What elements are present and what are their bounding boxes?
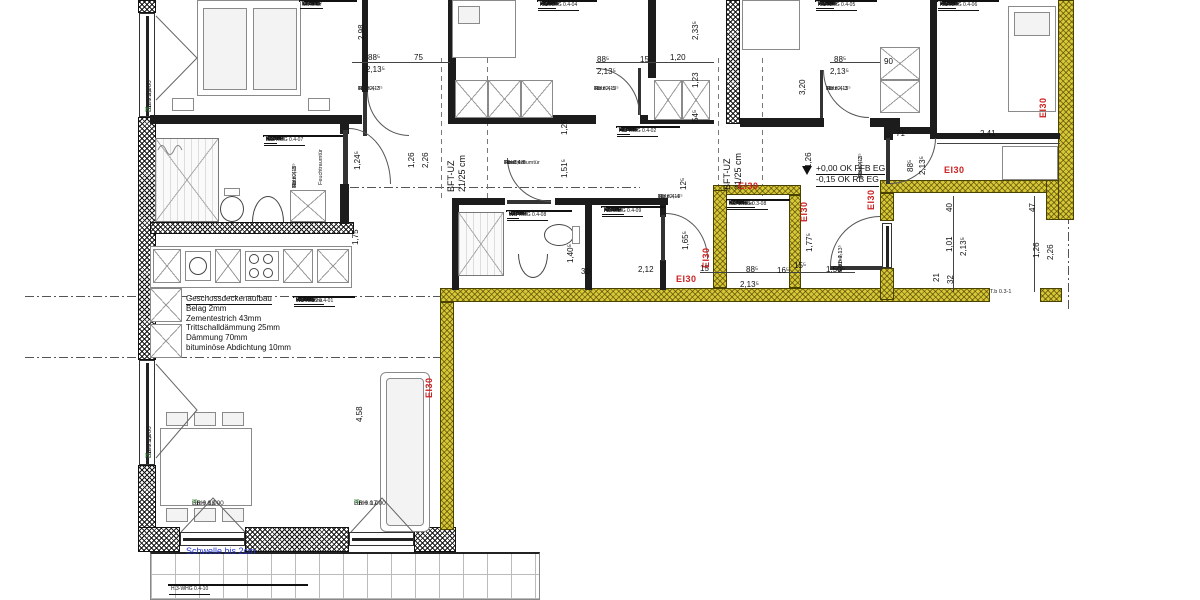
fire-rating-label: EI30 bbox=[738, 181, 759, 191]
room-info-box: H.3-WHG 0.4-02FlurFläche14,06 m²Umfang23… bbox=[616, 126, 680, 128]
shower bbox=[155, 138, 219, 222]
dimension-label: 2,26 bbox=[1047, 244, 1055, 260]
room-info-box: H.3-WHG 0.4-04Kind 1Fläche13,40 m²Umfang… bbox=[537, 0, 597, 2]
kitchen-cabinet bbox=[215, 249, 241, 283]
room-info-box: H.3-WHG 0.4-09Abstellr.Fläche3,81 m²Umfa… bbox=[601, 206, 665, 208]
dimension-label: 2,41 bbox=[980, 130, 996, 138]
interior-wall bbox=[640, 115, 648, 124]
room-field: Li. Höhe2,39 m bbox=[264, 136, 268, 137]
interior-wall bbox=[648, 120, 714, 124]
room-field: Li. Höhe2,51 m bbox=[538, 1, 542, 2]
dimension-label: 30 bbox=[581, 268, 590, 276]
dimension-label: 1,26 bbox=[805, 152, 813, 168]
nightstand bbox=[308, 98, 330, 111]
interior-window bbox=[882, 223, 892, 268]
room-info-box: SchlafenFläche15,37 m²Umfang17,56 mLi. H… bbox=[299, 0, 357, 2]
mattress bbox=[253, 8, 297, 90]
door-label-line: Holz bbox=[826, 86, 837, 92]
field-value: 2,51 m bbox=[619, 127, 634, 134]
dimension-label: 47 bbox=[1029, 203, 1037, 212]
dimension-label: 1,20 bbox=[670, 54, 686, 62]
note-line: Trittschalldämmung 25mm bbox=[186, 323, 280, 333]
interior-wall bbox=[740, 118, 824, 127]
beam-type: BFT-UZ bbox=[446, 161, 457, 193]
field-value: 2,51 m bbox=[296, 297, 311, 304]
section-line bbox=[1068, 215, 1069, 310]
dimension-label: 2,13⁵ bbox=[740, 281, 759, 289]
dimension-label: 40 bbox=[946, 203, 954, 212]
kitchen-cabinet bbox=[317, 249, 349, 283]
bath-kitchen-wall bbox=[150, 222, 354, 234]
party-wall bbox=[726, 0, 740, 124]
door-label-line: Holz bbox=[838, 261, 844, 272]
pillow bbox=[1014, 12, 1050, 36]
exterior-wall bbox=[245, 527, 349, 552]
burner bbox=[263, 254, 273, 264]
dimension-label: 88⁵ bbox=[746, 266, 758, 274]
pillow bbox=[458, 6, 480, 24]
room-field: Li. Höhe2,51 m bbox=[602, 207, 606, 208]
field-value: 2,39 m bbox=[509, 211, 524, 218]
dim-line bbox=[352, 62, 450, 63]
room-field: Li. Höhe2,39 m bbox=[507, 211, 511, 212]
dimension-label: 2,26 bbox=[422, 152, 430, 168]
dimension-label: 16⁵ bbox=[777, 267, 789, 275]
dimension-label: 1,01 bbox=[946, 236, 954, 252]
dimension-label: 3,20 bbox=[799, 79, 807, 95]
window bbox=[349, 532, 414, 546]
field-value: 2,51 m bbox=[302, 1, 317, 8]
note-line: Zementestrich 43mm bbox=[186, 314, 261, 324]
fire-wall bbox=[440, 302, 454, 530]
toilet-tank bbox=[224, 188, 240, 196]
sofa-cushion bbox=[386, 378, 424, 526]
wardrobe bbox=[455, 80, 488, 118]
dimension-label: 1,26 bbox=[561, 119, 569, 135]
fire-rating-label: EI30 bbox=[944, 165, 965, 175]
dimension-label: 2,13⁵ bbox=[597, 68, 616, 76]
chair bbox=[166, 508, 188, 522]
dimension-label: 1,24⁵ bbox=[354, 151, 362, 170]
nightstand bbox=[172, 98, 194, 111]
interior-wall bbox=[930, 0, 937, 133]
window-tag: 36 bbox=[192, 500, 198, 506]
chair bbox=[194, 412, 216, 426]
dimension-label: 12⁵ bbox=[680, 178, 688, 190]
dimension-label: 1,75 bbox=[352, 229, 360, 245]
note-line: bituminöse Abdichtung 10mm bbox=[186, 343, 291, 353]
chair bbox=[222, 412, 244, 426]
field-value: 2,51 m bbox=[540, 1, 555, 8]
kitchen-cabinet bbox=[153, 249, 181, 283]
wardrobe bbox=[654, 80, 682, 120]
dimension-label: 1,40⁵ bbox=[567, 244, 575, 263]
dimension-label: 88⁵ bbox=[368, 54, 380, 62]
dimension-label: 15 bbox=[640, 56, 649, 64]
tall-cabinet bbox=[150, 324, 182, 358]
fire-rating-label: EI30 bbox=[676, 274, 697, 284]
dimension-label: 2,13⁵ bbox=[830, 68, 849, 76]
note-line: Dämmung 70mm bbox=[186, 333, 247, 343]
interior-wall bbox=[362, 0, 368, 92]
door-label-line: Holz bbox=[594, 86, 605, 92]
kitchen-cabinet bbox=[283, 249, 313, 283]
interior-wall bbox=[340, 184, 349, 224]
kitchen-sink-basin bbox=[189, 257, 207, 275]
fire-wall bbox=[1058, 0, 1074, 220]
window-tag: 36 bbox=[146, 452, 152, 458]
toilet bbox=[544, 224, 574, 246]
room-field: Li. Höhe2,51 m bbox=[727, 200, 731, 201]
room-info-box: H.3-WHG 0.4-07BadFläche5,83 m²Umfang9,85… bbox=[263, 135, 343, 137]
floor-plan: Geschossdeckenaufbau Belag 2mm Zementest… bbox=[0, 0, 1200, 600]
fire-wall bbox=[1040, 288, 1062, 302]
dimension-label: 32 bbox=[947, 275, 955, 284]
field-value: 2,51 m bbox=[818, 1, 833, 8]
toilet-tank bbox=[572, 226, 580, 244]
door-label-line: Holz bbox=[292, 177, 298, 188]
dimension-label: 2,98 bbox=[358, 24, 366, 40]
dim-line bbox=[596, 62, 714, 63]
dimension-label: 54⁵ bbox=[692, 110, 700, 122]
door-label-line: T.b 0.3-1 bbox=[990, 289, 1011, 295]
tall-cabinet bbox=[150, 288, 182, 322]
dimension-label: 2,33⁵ bbox=[692, 21, 700, 40]
interior-wall bbox=[452, 198, 505, 205]
door-leaf bbox=[363, 92, 367, 136]
dimension-label: 2,13⁵ bbox=[960, 237, 968, 256]
burner bbox=[263, 268, 273, 278]
dimension-label: 1,26 bbox=[408, 152, 416, 168]
beam-type: BFT-UZ bbox=[722, 159, 733, 191]
dimension-label: 2,13⁵ bbox=[919, 156, 927, 175]
door-label-line: Feuchtraumtür bbox=[504, 160, 540, 166]
exterior-wall bbox=[138, 0, 156, 13]
exterior-wall bbox=[138, 527, 180, 552]
burner bbox=[249, 268, 259, 278]
room-field: Li. Höhe2,51 m bbox=[300, 1, 304, 2]
room-info-box: H.3-WHG 0.4-10 bbox=[168, 584, 308, 586]
door-swing bbox=[823, 70, 869, 118]
burner bbox=[249, 254, 259, 264]
chair bbox=[222, 508, 244, 522]
washing-machine bbox=[290, 190, 326, 222]
dimension-label: 21 bbox=[933, 273, 941, 282]
interior-wall bbox=[592, 198, 668, 205]
interior-wall bbox=[870, 118, 900, 127]
room-info-box: H.3-WHG 0.4-06Kind 3Fläche10,93 m²Umfang… bbox=[937, 0, 999, 2]
sink bbox=[518, 254, 548, 278]
sideboard bbox=[1002, 146, 1058, 180]
room-info-box: H.3-WHG 0.3-08GarderobeFläche1,94 m²Umfa… bbox=[726, 199, 790, 201]
door-leaf bbox=[343, 130, 348, 184]
sink bbox=[252, 196, 284, 222]
dimension-label: 1,65⁵ bbox=[682, 231, 690, 250]
field-value: 2,51 m bbox=[940, 1, 955, 8]
note-line: Belag 2mm bbox=[186, 304, 226, 314]
dimension-label: 1,77⁵ bbox=[806, 233, 814, 252]
fire-rating-label: EI30 bbox=[701, 247, 711, 268]
door-label-line: Holz bbox=[858, 167, 864, 178]
chair bbox=[194, 508, 216, 522]
fire-rating-label: EI30 bbox=[424, 377, 434, 398]
beam-line bbox=[718, 58, 719, 196]
field-value: 2,39 m bbox=[266, 136, 281, 143]
room-id: H.3-WHG 0.4-10 bbox=[169, 585, 210, 595]
fire-wall bbox=[440, 288, 990, 302]
dimension-label: 1,26 bbox=[1033, 242, 1041, 258]
wardrobe bbox=[880, 80, 920, 113]
chair bbox=[166, 412, 188, 426]
section-line bbox=[350, 187, 640, 188]
interior-wall bbox=[150, 115, 362, 124]
field-value: 2,51 m bbox=[729, 200, 744, 207]
dim-line bbox=[937, 143, 1060, 144]
dimension-label: 2,12 bbox=[638, 266, 654, 274]
room-field: Li. Höhe2,51 m bbox=[816, 1, 820, 2]
door-label-line: Holz bbox=[358, 86, 369, 92]
wardrobe bbox=[521, 80, 553, 118]
fire-wall bbox=[880, 193, 894, 221]
room-field: Li. Höhe2,51 m bbox=[294, 297, 298, 298]
interior-wall bbox=[660, 260, 666, 290]
room-info-box: H.3-WHG 0.4-01WohnkücheFläche33,02 m²Umf… bbox=[293, 296, 355, 298]
window bbox=[180, 532, 245, 546]
beam-line bbox=[441, 58, 442, 198]
section-line bbox=[25, 357, 440, 358]
interior-wall bbox=[648, 0, 656, 78]
room-field: Li. Höhe2,51 m bbox=[938, 1, 942, 2]
interior-wall bbox=[585, 198, 592, 290]
room-info-box: H.3-WHG 0.4-05Kind 2Fläche10,80 m²Umfang… bbox=[815, 0, 877, 2]
fire-rating-label: EI30 bbox=[1038, 97, 1048, 118]
dimension-label: 4,58 bbox=[356, 406, 364, 422]
dimension-label: 15⁵ bbox=[794, 262, 806, 270]
door-label-line: Feuchtraumtür bbox=[318, 149, 324, 185]
dimension-label: 90 bbox=[884, 58, 893, 66]
window-tag: 36 bbox=[146, 106, 152, 112]
level-rb: -0,15 OK RB EG bbox=[816, 174, 879, 186]
mattress bbox=[203, 8, 247, 90]
wardrobe bbox=[488, 80, 521, 118]
shower bbox=[458, 212, 504, 276]
room-info-box: H.3-WHG 0.4-08WCFläche2,67 m²Umfang6,76 … bbox=[506, 210, 572, 212]
door-label-line: Holz bbox=[658, 194, 669, 200]
fire-rating-label: EI30 bbox=[799, 201, 809, 222]
door-swing bbox=[367, 92, 409, 136]
fire-wall bbox=[880, 180, 1062, 193]
dimension-label: 71 bbox=[896, 130, 905, 138]
bed bbox=[742, 0, 800, 50]
beam-size: 21/25 cm bbox=[457, 155, 468, 192]
dimension-label: 1,23 bbox=[692, 72, 700, 88]
dimension-label: 88⁵ bbox=[907, 160, 915, 172]
exterior-wall bbox=[138, 465, 156, 528]
dimension-label: 75 bbox=[414, 54, 423, 62]
toilet bbox=[220, 196, 244, 222]
dimension-label: 88⁵ bbox=[597, 56, 609, 64]
room-field: Li. Höhe2,51 m bbox=[617, 127, 621, 128]
dimension-label: 1,51⁵ bbox=[561, 159, 569, 178]
window-tag: 36 bbox=[354, 500, 360, 506]
door-leaf bbox=[661, 215, 665, 261]
threshold-note: Schwelle bis 2cm bbox=[186, 546, 256, 556]
field-value: 2,51 m bbox=[604, 207, 619, 214]
beam-line bbox=[487, 58, 488, 198]
fire-wall bbox=[880, 268, 894, 300]
dimension-label: 88⁵ bbox=[834, 56, 846, 64]
dimension-label: 2,13⁵ bbox=[366, 66, 385, 74]
beam-line bbox=[762, 58, 763, 196]
dining-table bbox=[160, 428, 252, 506]
fire-rating-label: EI30 bbox=[866, 189, 876, 210]
fire-wall bbox=[713, 190, 727, 288]
